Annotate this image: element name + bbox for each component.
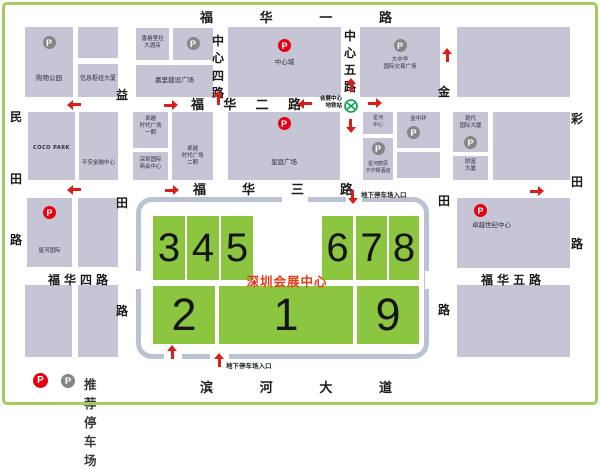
map-border: [2, 2, 598, 405]
shenzhen-convention-center-parking-map: { "colors": { "block_fill": "#c6c5d6", "…: [0, 0, 600, 407]
